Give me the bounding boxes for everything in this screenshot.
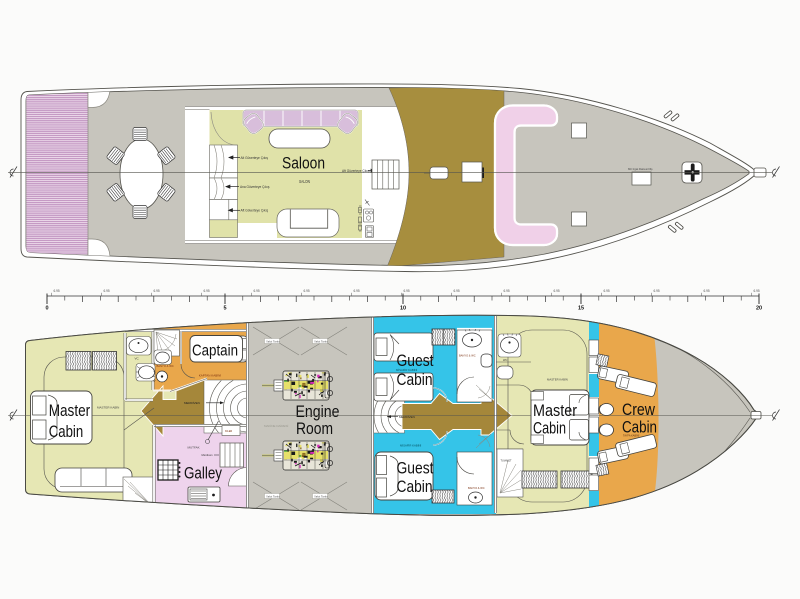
svg-text:MASTER KABİN: MASTER KABİN [547, 377, 568, 382]
svg-text:Merdiven: Merdiven [202, 453, 214, 457]
svg-text:6.95: 6.95 [354, 289, 360, 293]
svg-text:Engine: Engine [296, 403, 340, 421]
svg-text:Yakıt Tankı: Yakıt Tankı [314, 495, 328, 499]
svg-text:Crew: Crew [622, 401, 655, 419]
svg-text:Cabin: Cabin [397, 371, 433, 389]
svg-text:6.95: 6.95 [454, 289, 460, 293]
svg-text:6.95: 6.95 [554, 289, 560, 293]
svg-text:MAKİNE DAİRESİ: MAKİNE DAİRESİ [264, 423, 289, 428]
svg-text:6.95: 6.95 [504, 289, 510, 293]
svg-text:6.95: 6.95 [254, 289, 260, 293]
svg-text:Aft Güverteye Çıkış: Aft Güverteye Çıkış [241, 209, 269, 213]
svg-text:Room: Room [296, 420, 333, 438]
svg-text:Master: Master [533, 402, 577, 420]
svg-text:Guest: Guest [397, 460, 434, 478]
svg-text:MASTER KABİN: MASTER KABİN [97, 405, 119, 410]
svg-text:6.95: 6.95 [704, 289, 710, 293]
svg-text:MİSAFİR KABİNİ: MİSAFİR KABİNİ [396, 367, 418, 372]
svg-text:SALON: SALON [299, 179, 310, 184]
svg-text:KILER: KILER [225, 430, 232, 433]
svg-text:Mir Irgat Dairesi Dlş: Mir Irgat Dairesi Dlş [628, 167, 653, 171]
svg-text:Master: Master [49, 402, 91, 420]
svg-text:10: 10 [400, 306, 406, 312]
svg-text:6.95: 6.95 [404, 289, 410, 293]
svg-text:6.95: 6.95 [754, 289, 760, 293]
svg-text:Saloon: Saloon [282, 154, 325, 173]
svg-text:KAPTAN KABİNİ: KAPTAN KABİNİ [199, 373, 222, 378]
svg-text:TAYFA KABİNİ: TAYFA KABİNİ [623, 435, 640, 438]
svg-text:15: 15 [578, 306, 584, 312]
svg-text:MERDİVEN: MERDİVEN [184, 400, 200, 405]
svg-text:0: 0 [45, 306, 48, 312]
svg-text:BANYO & WC: BANYO & WC [157, 364, 174, 368]
svg-text:Cabin: Cabin [49, 423, 83, 441]
svg-text:Cabin: Cabin [533, 420, 566, 438]
svg-text:Captain: Captain [192, 343, 238, 360]
svg-text:6.95: 6.95 [654, 289, 660, 293]
svg-text:Yakıt Tankı: Yakıt Tankı [314, 340, 328, 344]
svg-text:MERDİVEN: MERDİVEN [399, 414, 415, 419]
svg-text:Yakıt Tankı: Yakıt Tankı [266, 340, 280, 344]
svg-text:Cabin: Cabin [397, 478, 433, 496]
svg-text:6.95: 6.95 [54, 289, 60, 293]
svg-text:TUVALET: TUVALET [501, 460, 513, 463]
svg-text:6.95: 6.95 [304, 289, 310, 293]
svg-text:6.95: 6.95 [604, 289, 610, 293]
svg-text:MİSAFİR KABİNİ: MİSAFİR KABİNİ [400, 443, 422, 448]
svg-text:Galley: Galley [184, 465, 223, 483]
svg-text:WC: WC [503, 358, 507, 362]
svg-text:Alt Güverteye Çıkış: Alt Güverteye Çıkış [241, 156, 269, 160]
svg-text:Yakıt Tankı: Yakıt Tankı [266, 495, 280, 499]
svg-text:BANYO & WC: BANYO & WC [459, 354, 476, 358]
svg-text:MUTFAK: MUTFAK [188, 446, 200, 450]
svg-text:Ana Güverteye Çıkış: Ana Güverteye Çıkış [240, 185, 270, 189]
svg-text:6.95: 6.95 [204, 289, 210, 293]
svg-text:5: 5 [223, 306, 226, 312]
svg-text:20: 20 [756, 306, 762, 312]
svg-text:6.95: 6.95 [104, 289, 110, 293]
svg-text:6.95: 6.95 [154, 289, 160, 293]
svg-text:BANYO & WC: BANYO & WC [468, 486, 485, 490]
